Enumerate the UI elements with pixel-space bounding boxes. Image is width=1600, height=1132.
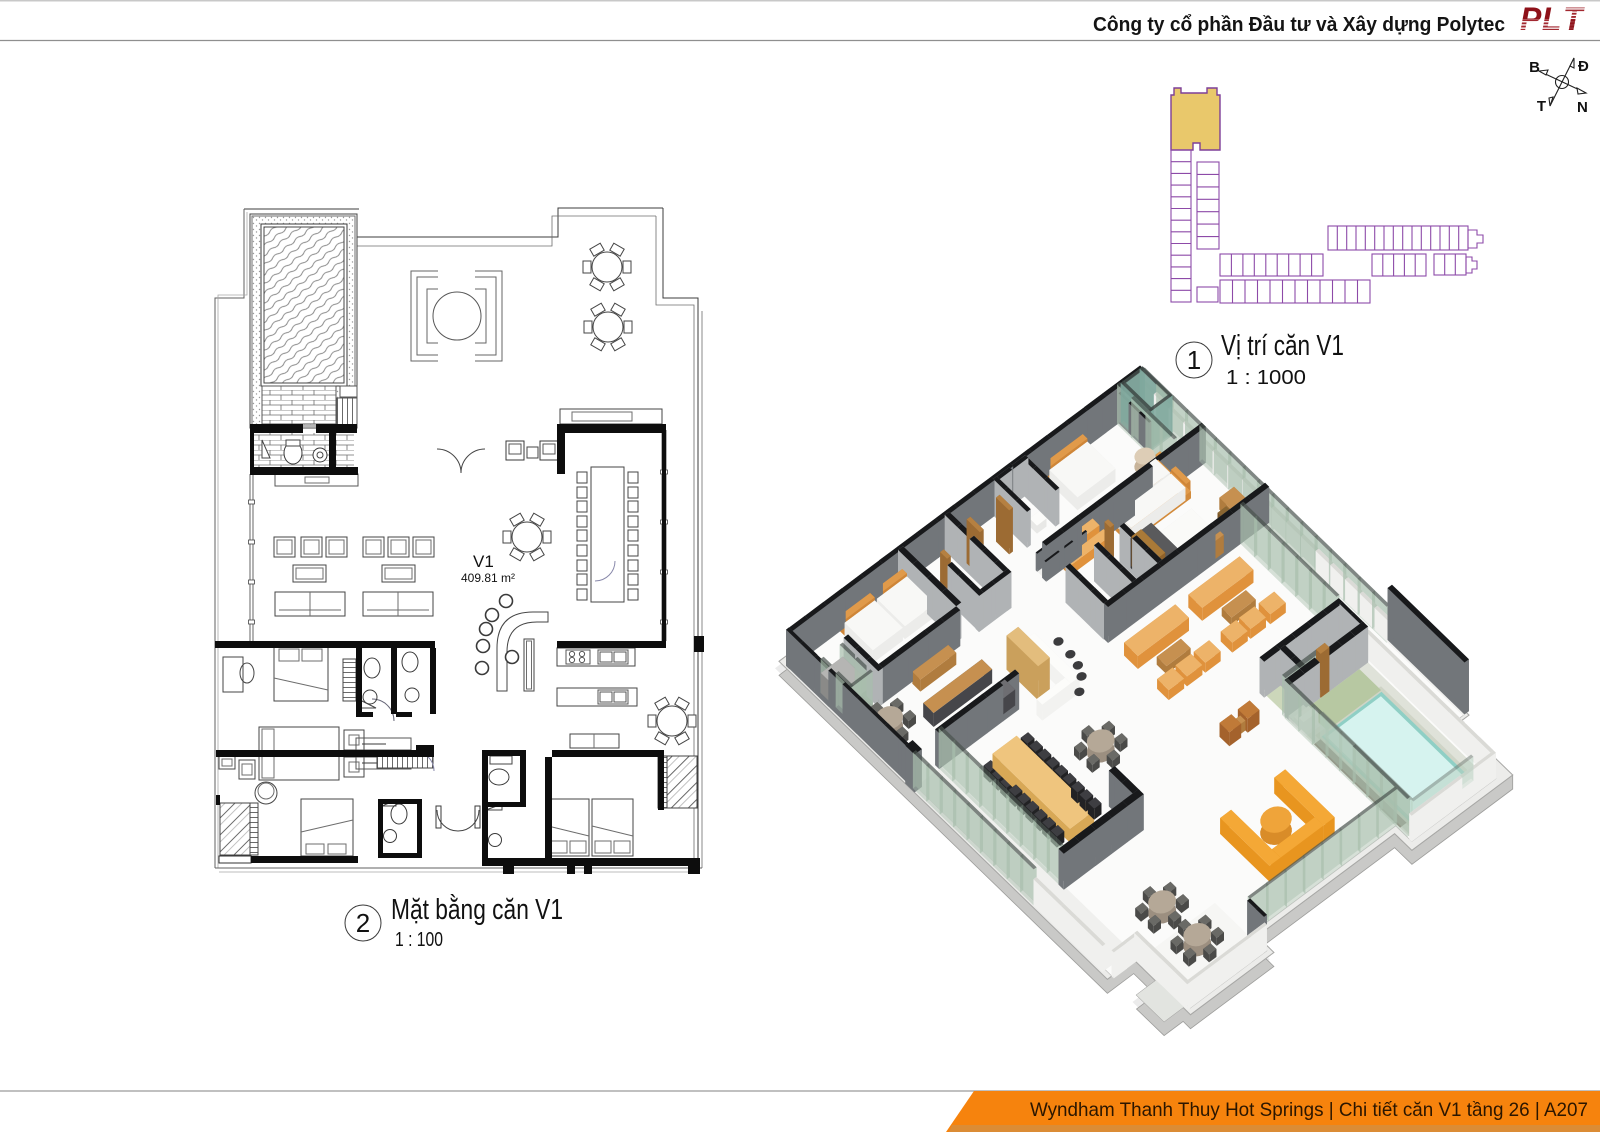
svg-text:Mặt bằng căn V1: Mặt bằng căn V1: [391, 893, 563, 926]
svg-text:V1: V1: [473, 552, 494, 571]
svg-text:B: B: [1529, 59, 1540, 76]
svg-text:1 : 100: 1 : 100: [395, 929, 443, 951]
svg-text:409.81 m²: 409.81 m²: [461, 571, 515, 585]
svg-text:Công ty cổ phần Đầu tư và Xây: Công ty cổ phần Đầu tư và Xây dựng Polyt…: [1093, 13, 1505, 36]
svg-text:N: N: [1577, 99, 1588, 116]
svg-text:1 : 1000: 1 : 1000: [1226, 367, 1306, 389]
svg-text:Wyndham Thanh Thuy Hot Springs: Wyndham Thanh Thuy Hot Springs | Chi tiế…: [1030, 1099, 1588, 1121]
svg-text:T: T: [1537, 98, 1546, 115]
svg-text:Đ: Đ: [1578, 58, 1589, 75]
svg-text:Vị trí căn V1: Vị trí căn V1: [1221, 330, 1344, 362]
svg-text:1: 1: [1187, 345, 1201, 375]
svg-text:2: 2: [356, 908, 370, 938]
